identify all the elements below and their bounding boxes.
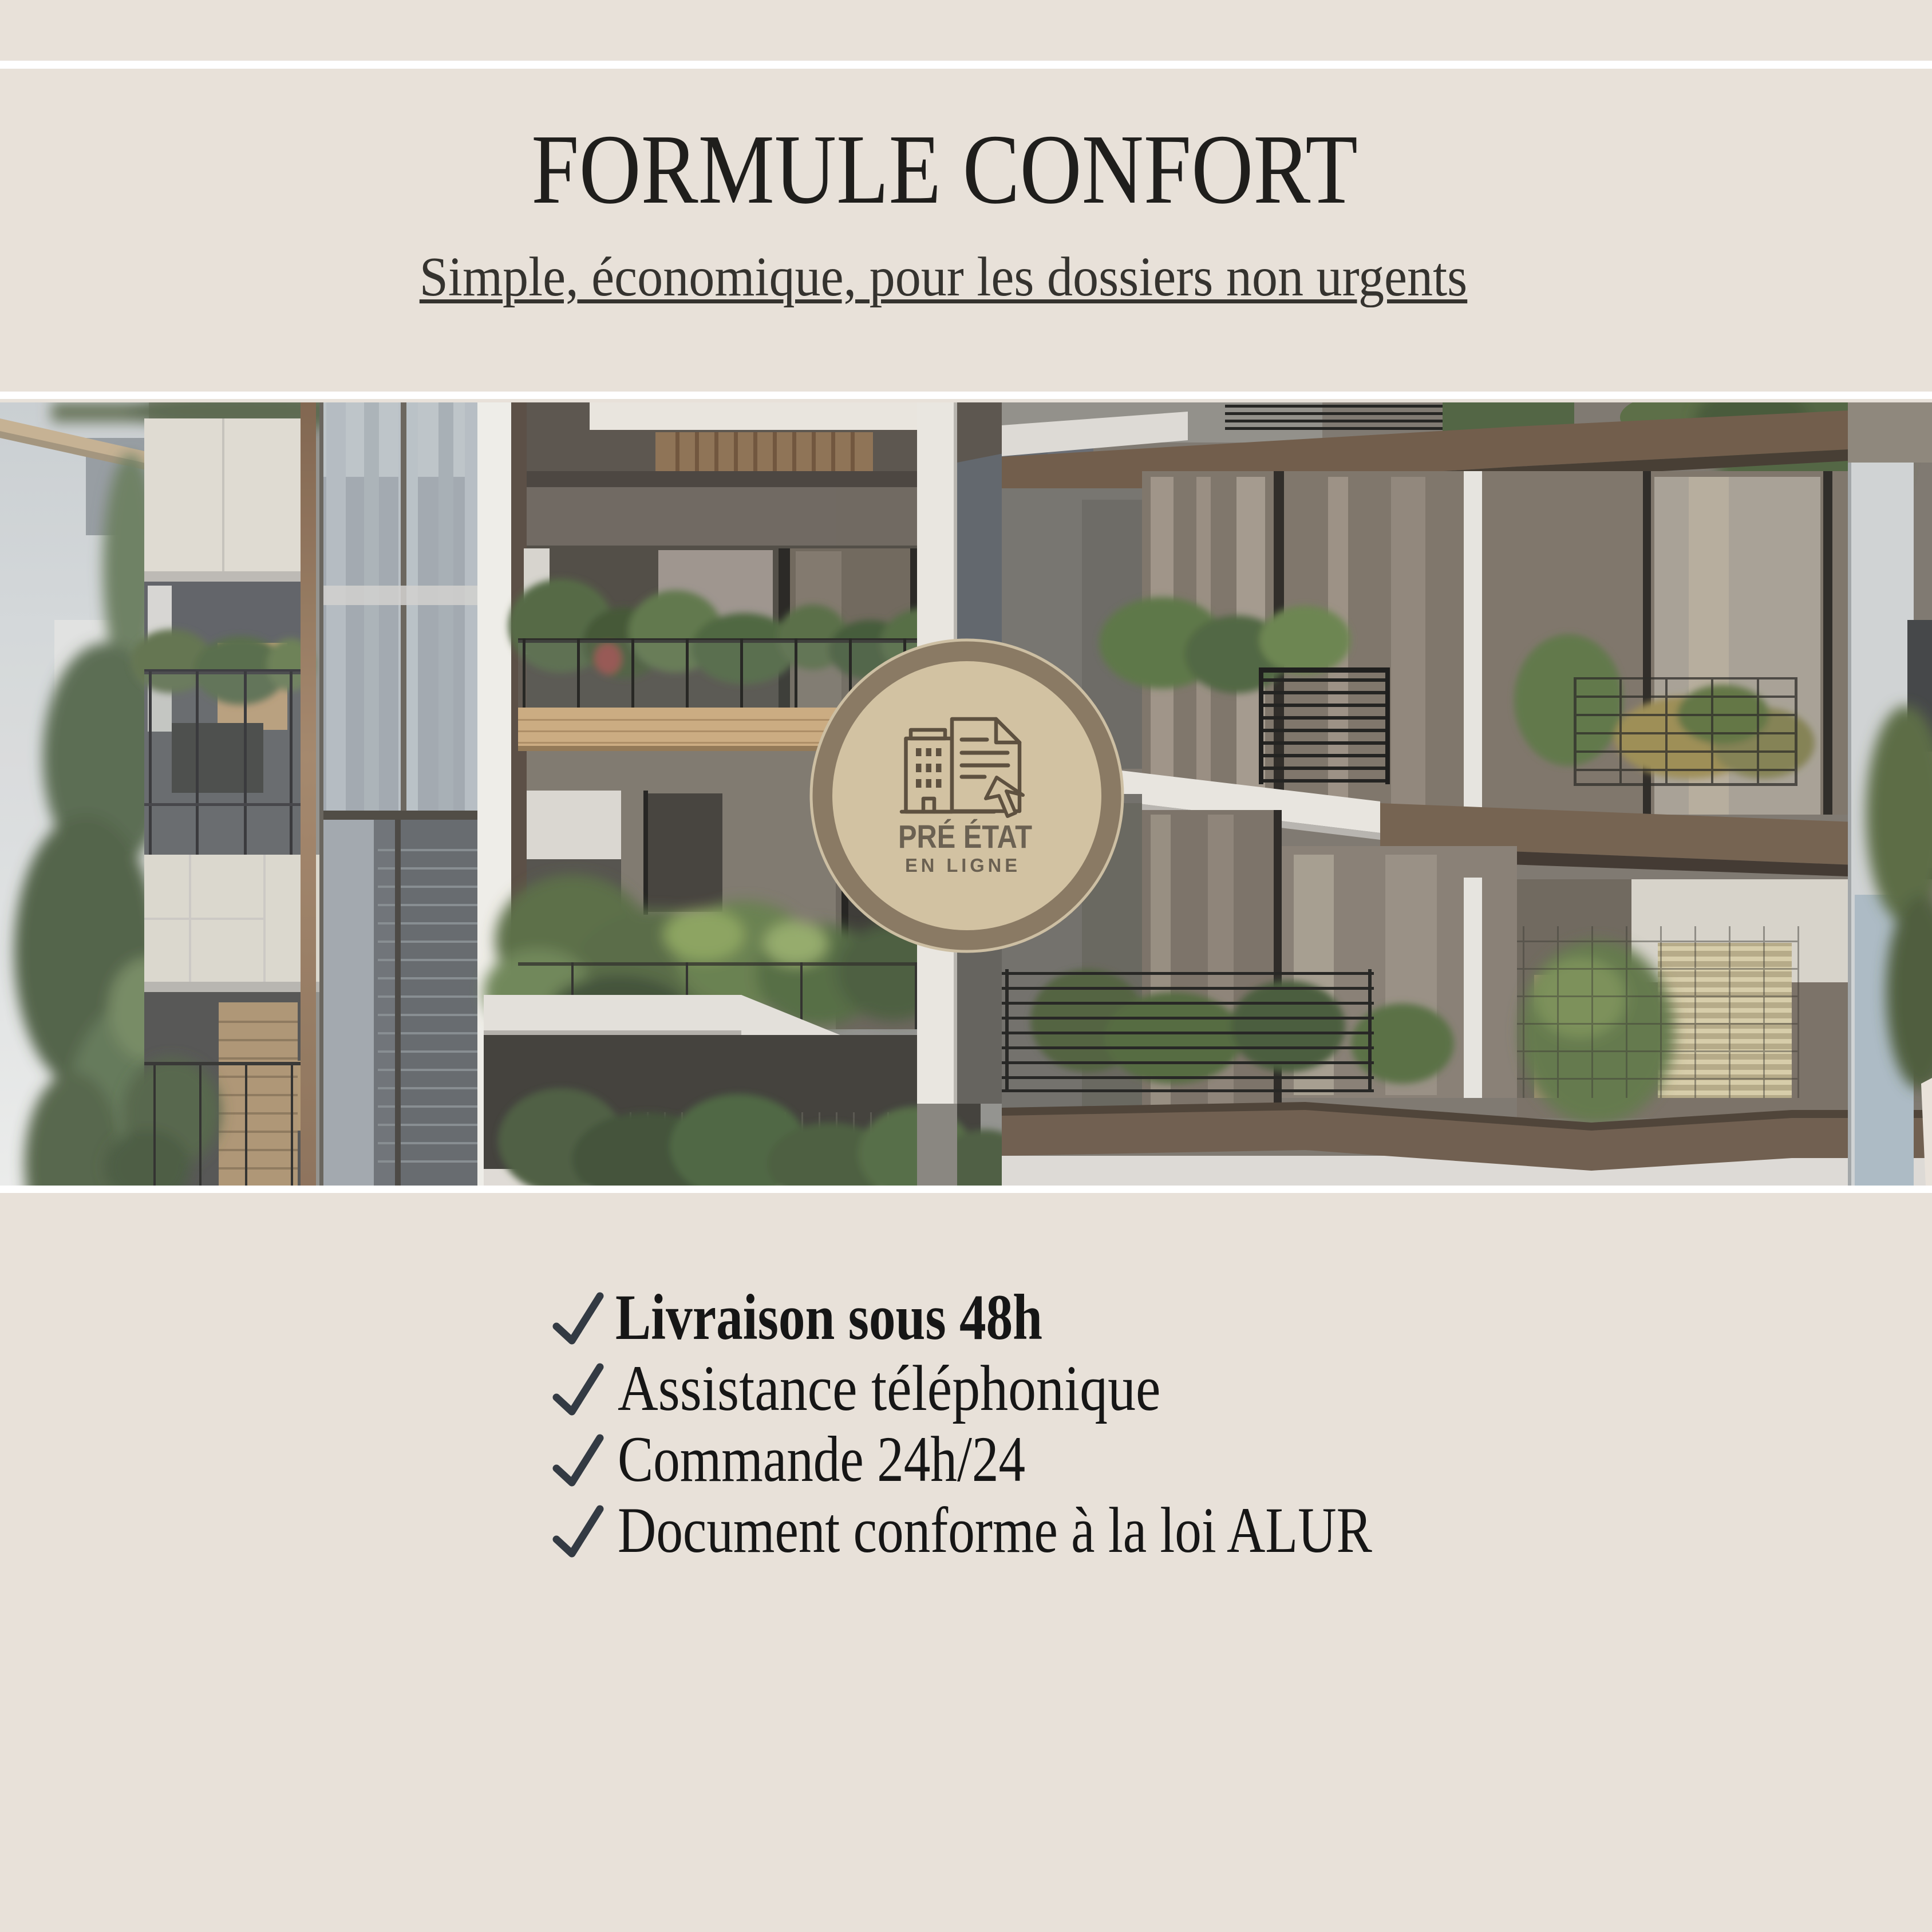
svg-text:EN LIGNE: EN LIGNE (905, 855, 1021, 876)
svg-text:PRÉ ÉTAT: PRÉ ÉTAT (898, 819, 1032, 855)
